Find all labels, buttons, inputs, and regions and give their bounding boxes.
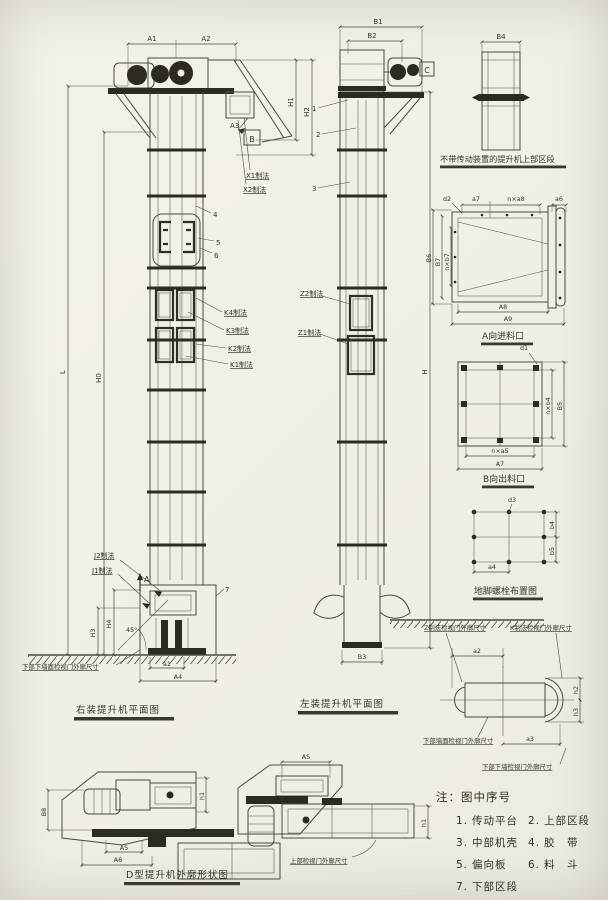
dim-h3-label: H3: [89, 629, 97, 638]
dim-b5s-label: b5: [548, 547, 556, 555]
right-mount-elevation: A1 A2 B A3 X1制法 X2制法 H1: [22, 35, 316, 721]
dim-b7-label: B7: [434, 258, 442, 266]
j2-door-label: J2制法: [93, 551, 115, 560]
part7-callout: 7: [225, 586, 229, 594]
dim-a4s-label: a4: [488, 563, 496, 571]
dim-d2-label: d2: [443, 195, 451, 203]
section-a-label: A: [144, 575, 150, 584]
lower-wall-door-label: 下部墙面检视门外廓尺寸: [423, 736, 494, 745]
upper-door-dims-label: 上部检视门外廓尺寸: [290, 856, 348, 865]
dim-nb7-label: n×b7: [443, 253, 451, 271]
note-2-label: 上部区段: [544, 814, 590, 827]
note-2-no: 2.: [528, 815, 540, 827]
drawing-canvas: A1 A2 B A3 X1制法 X2制法 H1: [0, 0, 608, 900]
dim-b8-label: B8: [40, 808, 48, 816]
dim-na8-label: n×a8: [507, 195, 524, 203]
outline-drawing-left: A5 h1 上部检视门外廓尺寸 D型提升机外廓形状图: [124, 753, 432, 885]
platform-bar: [338, 92, 424, 98]
dim-b4-label: B4: [496, 33, 506, 41]
dim-na5-label: n×a5: [491, 447, 508, 455]
dim-b4s-label: b4: [548, 521, 556, 529]
section-c-label: C: [424, 66, 430, 75]
dim-a1s-label: a1: [163, 660, 171, 668]
outline-caption: D型提升机外廓形状图: [126, 869, 229, 881]
dim-b5-label: B5: [556, 402, 564, 410]
motor-pulley: [127, 65, 147, 85]
door-outline-detail: Z制法检视门外廓尺寸 K制法检视门外廓尺寸 a2 h2 h3 下部墙面检视门外廓…: [423, 623, 584, 771]
dim-h0-label: H0: [95, 373, 103, 383]
note-1-no: 1.: [456, 815, 468, 827]
note-6-label: 料 斗: [544, 858, 579, 871]
k2-door-label: K2制法: [228, 344, 251, 353]
dim-a1-label: A1: [147, 35, 156, 43]
note-4-no: 4.: [528, 837, 540, 849]
drawing-sheet: A1 A2 B A3 X1制法 X2制法 H1: [0, 0, 608, 900]
dim-nb4-label: n×b4: [544, 397, 552, 415]
dim-a3-label: A3: [230, 122, 239, 130]
dim-h3-label: h3: [572, 708, 580, 716]
notes-block: 注：图中序号 1. 传动平台 2. 上部区段 3. 中部机壳 4. 胶 带 5.…: [436, 790, 590, 893]
section-b-label: B: [249, 135, 255, 144]
note-7-no: 7.: [456, 881, 468, 893]
part5-callout: 5: [216, 239, 220, 247]
part2-callout: 2: [316, 131, 320, 139]
dim-a9-label: A9: [504, 315, 512, 323]
note-3-no: 3.: [456, 837, 468, 849]
left-mount-elevation: B1 B2 C 1 2 3: [298, 18, 544, 715]
dim-a2-label: A2: [201, 35, 210, 43]
k4-door-label: K4制法: [224, 308, 247, 317]
k-door-dims-label: K制法检视门外廓尺寸: [510, 623, 572, 632]
outlet-caption: B向出料口: [483, 473, 525, 485]
dim-h2-label: H2: [303, 107, 311, 117]
dim-b6-label: B6: [425, 254, 433, 262]
notes-title: 注：图中序号: [436, 790, 511, 804]
part3-callout: 3: [312, 185, 316, 193]
dim-a6-label: a6: [555, 195, 563, 203]
tower-flanges-left: [337, 149, 387, 547]
dim-a6b-label: A6: [114, 856, 122, 864]
dim-b1-label: B1: [373, 18, 382, 26]
anchor-bolt-layout: d3 b4 b5 a4 地脚螺栓布置图: [472, 496, 560, 600]
dim-a8-label: A8: [499, 303, 507, 311]
left-view-caption: 左装提升机平面图: [300, 698, 384, 710]
lower-bottom-door-label: 下部下墙检视门外廓尺寸: [482, 762, 553, 771]
drive-platform: [108, 88, 234, 94]
dim-h1r-label: h1: [198, 792, 206, 800]
right-view-caption: 右装提升机平面图: [76, 704, 160, 716]
x2-door-label: X2制法: [243, 185, 266, 194]
k3-door-label: K3制法: [226, 326, 249, 335]
upper-section-caption: 不带传动装置的提升机上部区段: [440, 154, 555, 164]
note-1-label: 传动平台: [472, 814, 518, 827]
dim-h-label: H: [421, 369, 429, 374]
outlet-view: d1 n×b4 B5 n×a5 A7 B向出料口: [458, 344, 568, 488]
dim-h2-label: h2: [572, 686, 580, 694]
dim-a7b-label: A7: [496, 460, 504, 468]
dim-a4-label: A4: [174, 673, 182, 681]
inlet-caption: A向进料口: [482, 330, 524, 342]
dim-a5-label: A5: [120, 844, 128, 852]
dim-d1-label: d1: [520, 344, 528, 352]
part1-callout: 1: [312, 105, 316, 113]
dim-d3-label: d3: [508, 496, 516, 504]
dim-h4-label: H4: [105, 620, 113, 629]
dim-a3b-label: a3: [526, 735, 534, 743]
z1-door-label: Z1制法: [298, 328, 321, 337]
angle-label: 45°: [126, 626, 137, 634]
outline-drawing-right: B8 A5 A6 h1: [40, 772, 280, 879]
dim-a5-top-label: A5: [302, 753, 310, 761]
note-3-label: 中部机壳: [472, 836, 518, 849]
note-5-label: 偏向板: [472, 858, 507, 871]
dim-l-label: L: [59, 370, 67, 374]
note-7-label: 下部区段: [472, 880, 518, 893]
dim-h1-label: H1: [287, 97, 295, 107]
j1-door-label: J1制法: [91, 566, 113, 575]
note-6-no: 6.: [528, 859, 540, 871]
dim-h1l-label: h1: [420, 819, 428, 827]
part6-callout: 6: [214, 252, 219, 260]
k-doors: [156, 290, 194, 362]
z2-door-label: Z2制法: [300, 289, 323, 298]
part4-callout: 4: [213, 211, 218, 219]
note-5-no: 5.: [456, 859, 468, 871]
dim-a7-label: a7: [472, 195, 480, 203]
dim-b3-label: B3: [358, 653, 366, 661]
note-4-label: 胶 带: [544, 836, 579, 849]
anchor-caption: 地脚螺栓布置图: [474, 585, 537, 597]
dim-a2-label: a2: [473, 647, 481, 655]
lower-door-dims-label: 下部下墙面检视门外廓尺寸: [22, 662, 99, 671]
z-door-dims-label: Z制法检视门外廓尺寸: [424, 623, 487, 632]
inlet-view: d2 a7 n×a8 a6 B6 B7 n×b7: [425, 195, 566, 345]
upper-section-view: B4 不带传动装置的提升机上部区段: [440, 33, 566, 168]
dim-b2-label: B2: [367, 32, 376, 40]
x1-door-label: X1制法: [246, 171, 269, 180]
k1-door-label: K1制法: [230, 360, 253, 369]
